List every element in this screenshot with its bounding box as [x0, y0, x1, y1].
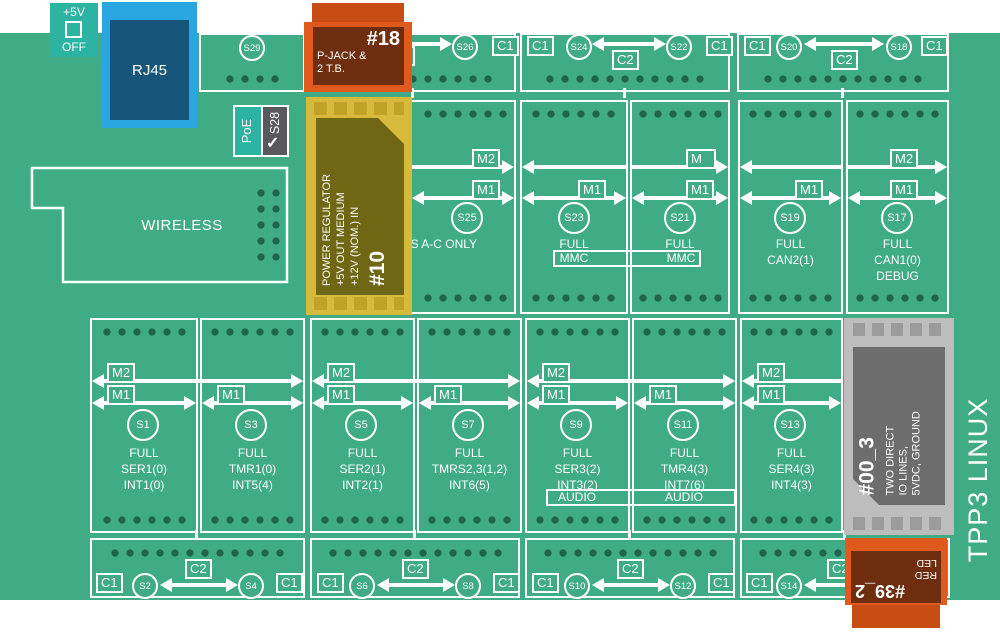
module-10-desc: POWER REGULATOR [320, 118, 334, 286]
pin-dots [321, 516, 404, 524]
socket-s7-line: INT6(5) [417, 478, 522, 492]
m2-label: M2 [107, 363, 135, 383]
c2-label: C2 [617, 559, 644, 579]
audio-label-right: AUDIO [658, 490, 710, 504]
m1-label: M1 [107, 385, 135, 405]
module-10-id: #10 [366, 118, 390, 286]
socket-s25: S25 [451, 202, 483, 234]
pin-dots [329, 549, 502, 557]
audio-label-left: AUDIO [551, 490, 603, 504]
pin-dots [856, 294, 939, 302]
socket-s12: S12 [670, 573, 696, 599]
module-10-pins-top [314, 102, 404, 115]
c1-label: C1 [708, 573, 735, 593]
pin-dots [211, 328, 294, 336]
align-tick [623, 88, 626, 98]
socket-s20: S20 [776, 34, 802, 60]
socket-s29: S29 [239, 35, 265, 61]
socket-s21: S21 [664, 202, 696, 234]
c1-label: C1 [493, 573, 520, 593]
poe-label-wrap: PoE [234, 105, 260, 157]
socket-s10: S10 [564, 573, 590, 599]
module-39-2-tab [852, 602, 940, 628]
socket-s9-line: SER3(2) [525, 462, 630, 476]
pin-dots [111, 549, 284, 557]
align-tick [413, 530, 416, 540]
c2-arrow-s10-s12 [604, 583, 658, 587]
c1-label: C1 [492, 36, 519, 56]
board-title: TPP3 LINUX [956, 385, 1000, 575]
c1-label: C1 [746, 573, 773, 593]
socket-s11-line: FULL [632, 446, 737, 460]
socket-s6: S6 [349, 573, 375, 599]
wireless-label: WIRELESS [122, 217, 242, 234]
c1-label: C1 [744, 36, 771, 56]
pin-dots [103, 328, 186, 336]
pin-dots [643, 516, 726, 524]
socket-s5-line: INT2(1) [310, 478, 415, 492]
pin-dots [544, 549, 717, 557]
socket-s13-line: INT4(3) [740, 478, 843, 492]
m1-label: M1 [649, 385, 677, 405]
c2-arrow-s20-s18 [816, 42, 872, 46]
pin-dots [750, 328, 833, 336]
module-39-2-inner: #39_2 RED LED [851, 551, 941, 603]
pin-dots [643, 328, 726, 336]
socket-s19-line: CAN2(1) [738, 253, 843, 267]
socket-s23-line: FULL [520, 237, 628, 251]
module-00-3-text: #00_3 TWO DIRECT IO LINES, 5VDC, GROUND [854, 351, 946, 506]
socket-s11: S11 [667, 409, 699, 441]
c1-label: C1 [532, 573, 559, 593]
socket-s2: S2 [132, 573, 158, 599]
pin-dots [103, 516, 186, 524]
pin-dots [428, 328, 511, 336]
pin-dots [639, 294, 722, 302]
m1-label: M1 [217, 385, 245, 405]
module-39-2-desc: RED [851, 569, 941, 581]
module-00-3-desc: 5VDC, GROUND [911, 351, 924, 496]
c2-arrow-s24-s22 [604, 42, 654, 46]
socket-s19-line: FULL [738, 237, 843, 251]
socket-s3-line: INT5(4) [200, 478, 305, 492]
c2-label: C2 [185, 559, 212, 579]
socket-s5: S5 [345, 409, 377, 441]
c2-label: C2 [402, 559, 429, 579]
m1-label: M1 [757, 385, 785, 405]
pin-dots [428, 516, 511, 524]
socket-s1-line: INT1(0) [90, 478, 198, 492]
socket-s22: S22 [666, 34, 692, 60]
m2-label: M2 [542, 363, 570, 383]
pin-dots [856, 110, 939, 118]
c2-label: C2 [612, 50, 639, 70]
module-00-3-desc: IO LINES, [898, 351, 911, 496]
module-18-id: #18 [313, 27, 404, 50]
c1-label: C1 [706, 36, 733, 56]
c2-arrow-s2-s4 [172, 583, 226, 587]
align-tick [195, 530, 198, 540]
module-00-3-pins-top [853, 323, 945, 336]
socket-s3: S3 [235, 409, 267, 441]
m1-label: M1 [686, 180, 714, 200]
module-39-2-desc: LED [851, 557, 941, 569]
socket-s21-line: FULL [630, 237, 730, 251]
socket-s11-line: TMR4(3) [632, 462, 737, 476]
socket-s8: S8 [455, 573, 481, 599]
align-tick [841, 88, 844, 98]
module-18-desc: 2 T.B. [313, 63, 404, 76]
c1-label: C1 [527, 36, 554, 56]
pin-dots [424, 110, 507, 118]
socket-s17-line: FULL [846, 237, 949, 251]
socket-s13-line: SER4(3) [740, 462, 843, 476]
pin-dots [546, 75, 704, 83]
module-10-desc: +12V (NOM.) IN [348, 118, 362, 286]
m1-label: M1 [327, 385, 355, 405]
socket-s9-line: FULL [525, 446, 630, 460]
socket-s13-line: FULL [740, 446, 843, 460]
c1-label: C1 [276, 573, 303, 593]
rj45-port: RJ45 [102, 2, 197, 128]
pin-dots [211, 516, 294, 524]
m2-arrow-s23 [534, 165, 628, 169]
m1-label: M1 [472, 180, 500, 200]
m1-label: M1 [795, 180, 823, 200]
socket-s13: S13 [774, 409, 806, 441]
socket-s3-line: TMR1(0) [200, 462, 305, 476]
socket-s26: S26 [452, 34, 478, 60]
c1-label: C1 [921, 36, 948, 56]
pin-dots [321, 328, 404, 336]
m2-arrow-s19 [752, 165, 843, 169]
mmc-label-right: MMC [660, 251, 702, 265]
socket-s17-line: DEBUG [846, 269, 949, 283]
module-00-3-pins-bottom [853, 517, 945, 530]
pin-dots [536, 516, 619, 524]
pin-dots [749, 110, 832, 118]
pin-dots [750, 516, 833, 524]
socket-s3-line: FULL [200, 446, 305, 460]
m1-label: M1 [578, 180, 606, 200]
pin-dots [424, 294, 507, 302]
m1-label: M1 [434, 385, 462, 405]
m2-label: M2 [327, 363, 355, 383]
pin-dots [536, 328, 619, 336]
socket-s18: S18 [886, 34, 912, 60]
m2-label: M2 [472, 149, 500, 169]
wireless-pin-dots [257, 189, 281, 265]
socket-s4: S4 [238, 573, 264, 599]
pin-dots [749, 294, 832, 302]
power-5v-checkbox[interactable] [65, 21, 82, 38]
m1-label: M1 [890, 180, 918, 200]
pin-dots [639, 110, 722, 118]
module-39-2: #39_2 RED LED [845, 538, 947, 628]
poe-check-icon: ✓ [266, 133, 279, 153]
m2-label-blank: M [686, 149, 716, 169]
board-title-text: TPP3 LINUX [963, 398, 993, 563]
m1-label: M1 [542, 385, 570, 405]
c1-label: C1 [317, 573, 344, 593]
socket-s9: S9 [560, 409, 592, 441]
module-18: #18 P-JACK & 2 T.B. [304, 3, 412, 92]
socket-s5-line: SER2(1) [310, 462, 415, 476]
poe-s28-label: S28 [268, 112, 282, 134]
pin-dots [226, 75, 279, 83]
mmc-label-left: MMC [553, 251, 595, 265]
m2-label: M2 [890, 149, 918, 169]
socket-s17: S17 [881, 202, 913, 234]
socket-s24: S24 [566, 34, 592, 60]
power-off-label: OFF [50, 40, 98, 54]
socket-s1-line: FULL [90, 446, 198, 460]
module-18-inner: #18 P-JACK & 2 T.B. [313, 27, 404, 85]
module-18-desc: P-JACK & [313, 50, 404, 63]
socket-s7-line: FULL [417, 446, 522, 460]
pin-dots [764, 75, 922, 83]
socket-s19: S19 [774, 202, 806, 234]
c2-arrow-s14 [816, 583, 847, 587]
rj45-label: RJ45 [132, 62, 167, 79]
socket-s7: S7 [452, 409, 484, 441]
module-10-desc: +5V OUT MEDIUM [334, 118, 348, 286]
socket-s7-line: TMRS2,3(1,2) [417, 462, 522, 476]
power-5v-label: +5V [50, 5, 98, 19]
module-10-pins-bottom [314, 297, 404, 310]
c1-label: C1 [96, 573, 123, 593]
socket-s5-line: FULL [310, 446, 415, 460]
poe-label: PoE [239, 119, 254, 144]
rj45-body: RJ45 [110, 20, 189, 120]
module-10-text: POWER REGULATOR +5V OUT MEDIUM +12V (NOM… [316, 118, 404, 294]
socket-s23: S23 [558, 202, 590, 234]
pin-dots [532, 294, 615, 302]
socket-s17-line: CAN1(0) [846, 253, 949, 267]
socket-s14: S14 [776, 573, 802, 599]
socket-s1: S1 [127, 409, 159, 441]
power-5v-switch: +5V OFF [50, 3, 98, 57]
pcb-diagram: +5V OFF RJ45 WIRELESS PoE S28 ✓ S29 C2 S… [0, 0, 1000, 633]
socket-s1-line: SER1(0) [90, 462, 198, 476]
c2-label: C2 [831, 50, 858, 70]
module-00-3-desc: TWO DIRECT [885, 351, 898, 496]
m2-label: M2 [757, 363, 785, 383]
module-39-2-id: #39_2 [851, 581, 941, 603]
pin-dots [532, 110, 615, 118]
c2-arrow-s6-s8 [389, 583, 443, 587]
module-00-3-id: #00_3 [856, 351, 880, 496]
align-tick [628, 530, 631, 540]
